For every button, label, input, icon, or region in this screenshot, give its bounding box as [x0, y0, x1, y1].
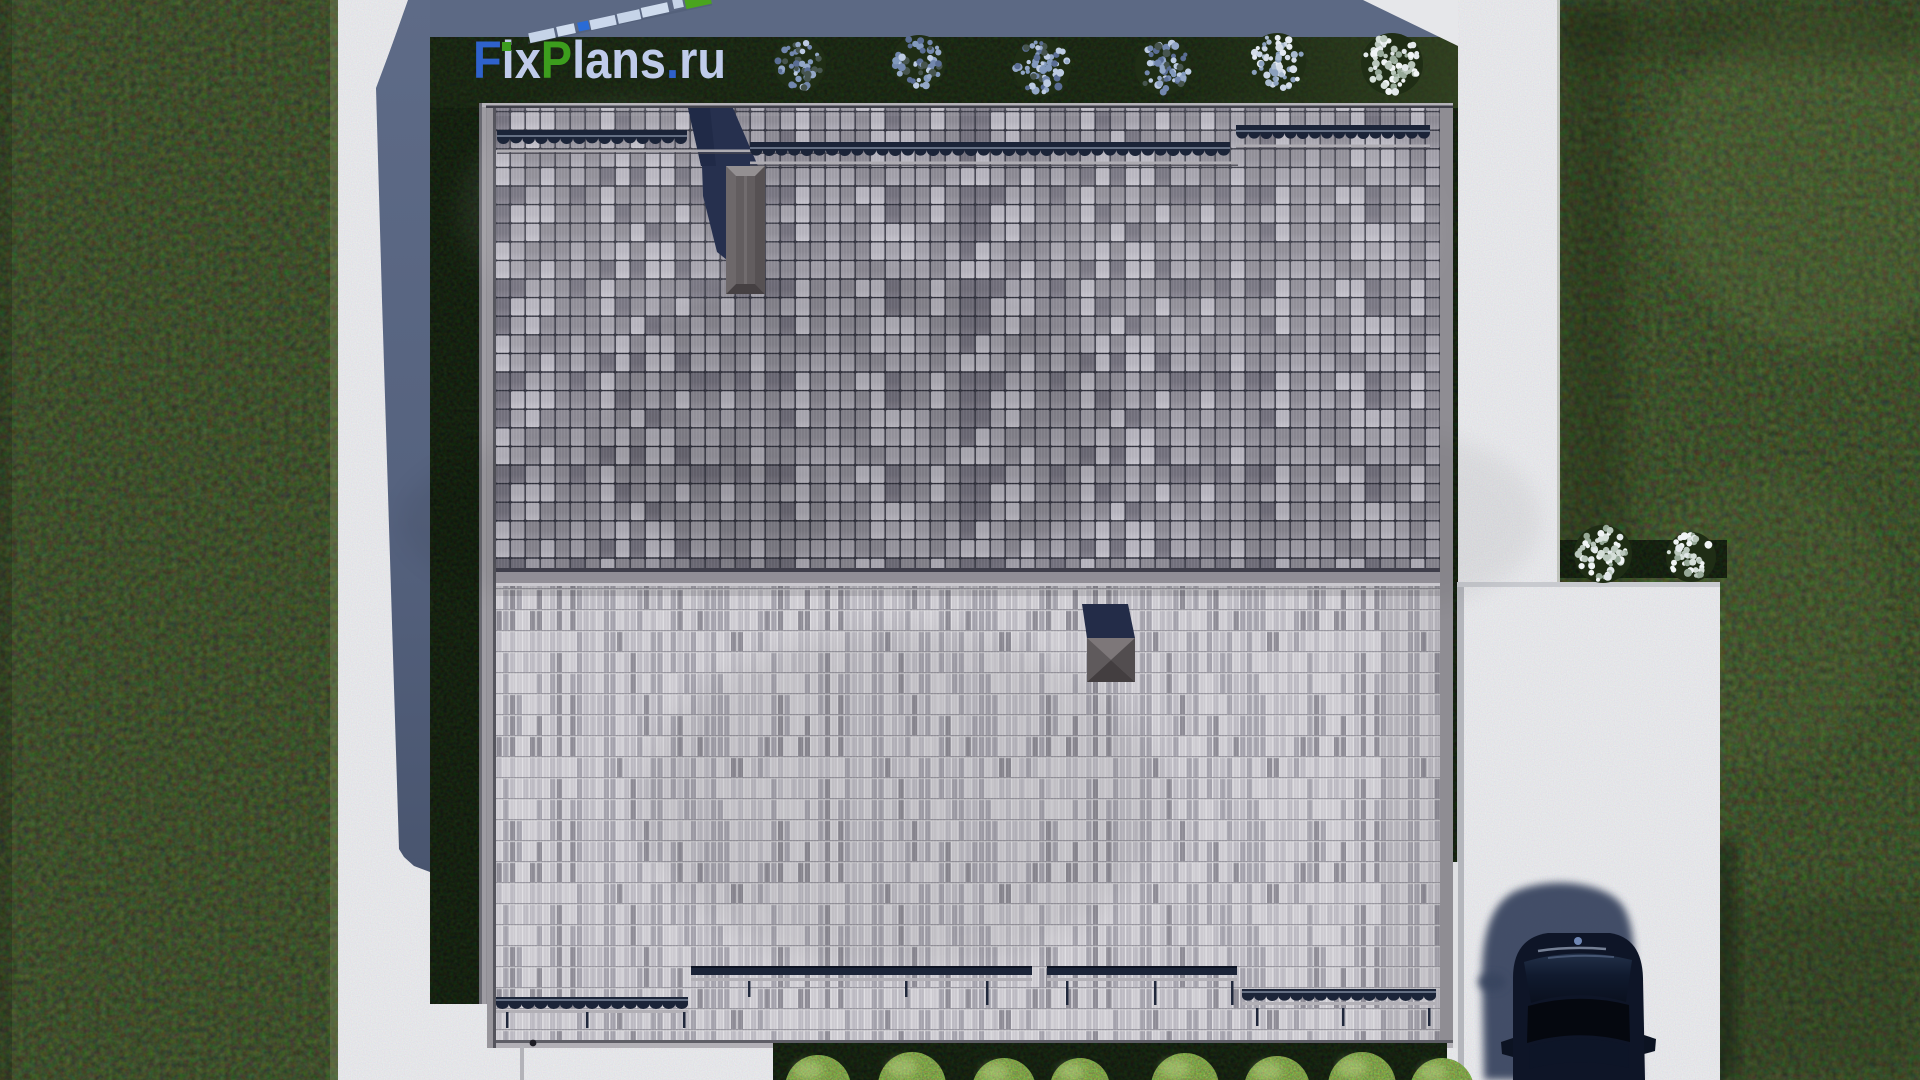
svg-text:FixPlans.ru: FixPlans.ru	[473, 31, 726, 90]
